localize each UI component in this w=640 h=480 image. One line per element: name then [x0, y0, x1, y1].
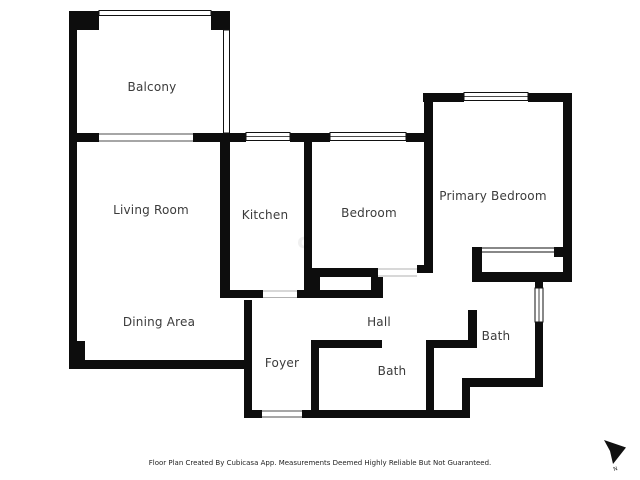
wall — [462, 378, 543, 387]
foyer-opening — [263, 291, 297, 298]
watermark: c — [297, 229, 309, 253]
wall — [426, 340, 434, 414]
wall — [472, 272, 572, 282]
entry-door-opening — [262, 410, 302, 418]
balcony-door-opening — [99, 133, 193, 142]
room-label-bath-right: Bath — [482, 329, 511, 343]
wall — [424, 93, 433, 273]
bath-window — [535, 288, 543, 322]
kitchen-window — [246, 133, 290, 141]
wall — [220, 142, 230, 298]
room-label-bath-lower: Bath — [378, 364, 407, 378]
room-label-bedroom: Bedroom — [341, 206, 397, 220]
bedroom-door-opening — [378, 269, 417, 276]
bedroom-window — [330, 133, 406, 141]
primary-bedroom-window — [464, 93, 528, 101]
room-label-primary-bedroom: Primary Bedroom — [439, 189, 546, 203]
wall — [311, 340, 319, 414]
closet-sliding-door — [482, 248, 556, 253]
wall — [244, 300, 252, 418]
wall — [308, 277, 320, 290]
wall — [220, 290, 263, 298]
balcony-railing-top — [99, 11, 211, 16]
wall — [468, 310, 477, 348]
wall — [308, 268, 378, 277]
north-label: N — [613, 466, 619, 473]
wall — [193, 133, 246, 142]
room-label-dining-area: Dining Area — [123, 315, 195, 329]
room-label-hall: Hall — [367, 315, 391, 329]
wall — [371, 277, 383, 290]
wall — [554, 247, 572, 257]
balcony-railing-right — [224, 30, 230, 133]
floor-plan-drawing: N — [0, 0, 640, 480]
wall — [211, 11, 230, 30]
footer-disclaimer: Floor Plan Created By Cubicasa App. Meas… — [149, 459, 492, 467]
wall — [69, 133, 99, 142]
wall — [528, 93, 572, 102]
north-arrow-icon: N — [604, 440, 626, 473]
room-label-kitchen: Kitchen — [242, 208, 289, 222]
floor-plan-canvas: N Balcony Living Room Kitchen Bedroom Pr… — [0, 0, 640, 480]
wall — [417, 265, 424, 273]
wall — [69, 11, 99, 30]
wall — [77, 360, 252, 369]
wall — [69, 30, 77, 341]
room-label-foyer: Foyer — [265, 356, 299, 370]
room-label-balcony: Balcony — [128, 80, 177, 94]
room-label-living-room: Living Room — [113, 203, 189, 217]
wall — [316, 340, 382, 348]
wall — [535, 321, 543, 387]
